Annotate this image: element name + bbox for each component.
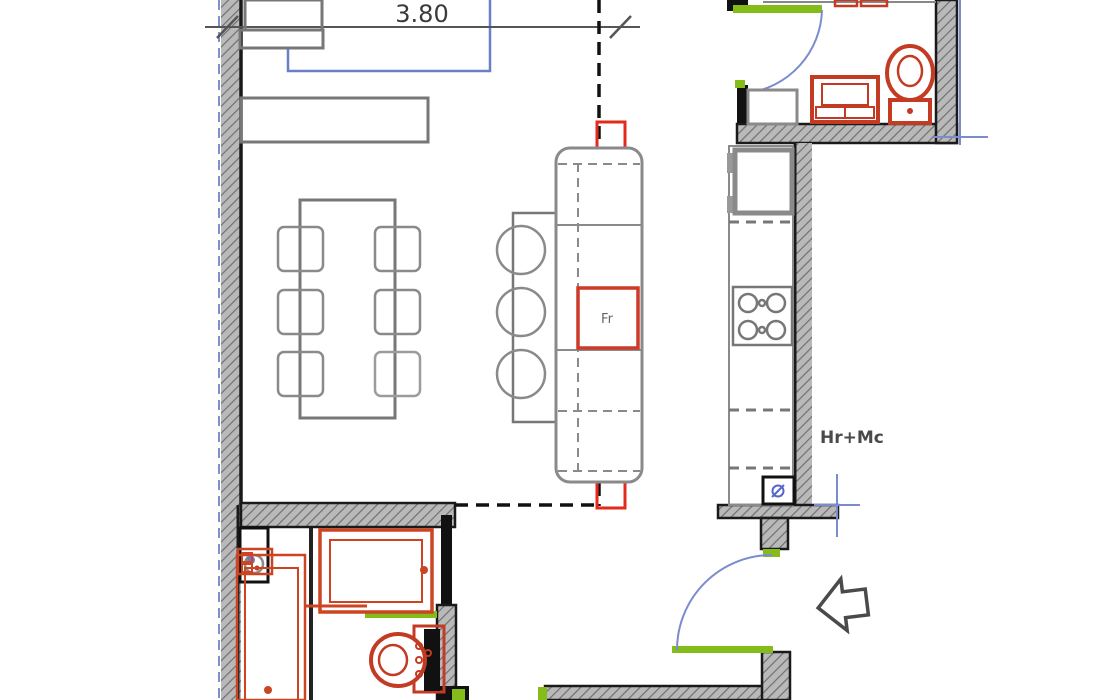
island-vent-bottom — [597, 482, 625, 508]
burner — [767, 321, 785, 339]
dining-table — [300, 200, 395, 418]
wc-left-wall — [737, 85, 748, 127]
dimension-380: 3.80 — [205, 0, 640, 38]
tray-drain — [420, 566, 428, 574]
entry-door-leaf — [672, 646, 773, 653]
kitchen-island: Fr — [556, 148, 642, 482]
chair — [375, 290, 420, 334]
shelf-lower — [240, 30, 323, 48]
shower-tray — [320, 530, 432, 612]
shelf-upper — [245, 0, 322, 30]
wc-right-wall — [936, 0, 957, 143]
kitchen-counter — [727, 146, 794, 505]
wc-washbasin — [812, 77, 878, 122]
window-line — [288, 0, 490, 71]
dimension-label: 3.80 — [395, 0, 448, 28]
bottom-wall-corner — [762, 652, 790, 700]
stove-knob — [759, 327, 765, 333]
entry-arrow-icon — [815, 576, 870, 634]
utility-label: Hr+Mc — [820, 428, 884, 448]
wc-cabinet — [748, 90, 797, 124]
toilet-bowl — [887, 46, 933, 100]
tray-outline — [320, 530, 432, 612]
fridge-label: Fr — [601, 312, 614, 327]
toilet-button — [907, 108, 913, 114]
shower-inner — [245, 568, 298, 700]
entry-door-arc — [677, 555, 772, 650]
island-vent-top — [597, 122, 625, 148]
tray-inner — [330, 540, 422, 602]
wc-bottom-wall — [737, 124, 957, 143]
burner — [739, 294, 757, 312]
wc-toilet — [887, 46, 933, 123]
bathroom-top-wall — [241, 503, 455, 527]
kitchen-sink — [735, 150, 792, 213]
wc-door-arc-end — [735, 80, 745, 88]
stove-knob — [759, 300, 765, 306]
floor-plan-canvas: 3.80 — [0, 0, 1120, 700]
stool — [497, 288, 545, 336]
floor-plan-svg: 3.80 — [0, 0, 1120, 700]
wc-door-leaf — [733, 5, 822, 13]
burner — [767, 294, 785, 312]
entry-door-stub — [761, 518, 788, 549]
chair — [375, 227, 420, 271]
stove — [733, 287, 792, 345]
bottom-wall — [545, 686, 763, 700]
bar-stools — [497, 226, 545, 398]
chair — [375, 352, 420, 396]
kitchen-right-wall — [795, 143, 812, 505]
stool — [497, 350, 545, 398]
shower-drain — [264, 686, 272, 694]
stool — [497, 226, 545, 274]
burner — [739, 321, 757, 339]
furniture — [240, 0, 582, 422]
sideboard — [241, 98, 428, 142]
entry-t-wall — [718, 505, 838, 518]
bathroom-right-wall-upper — [441, 515, 452, 612]
bottom-wall-threshold — [538, 687, 547, 700]
bath-toilet — [371, 626, 444, 692]
bathroom-corner-threshold — [452, 689, 465, 700]
